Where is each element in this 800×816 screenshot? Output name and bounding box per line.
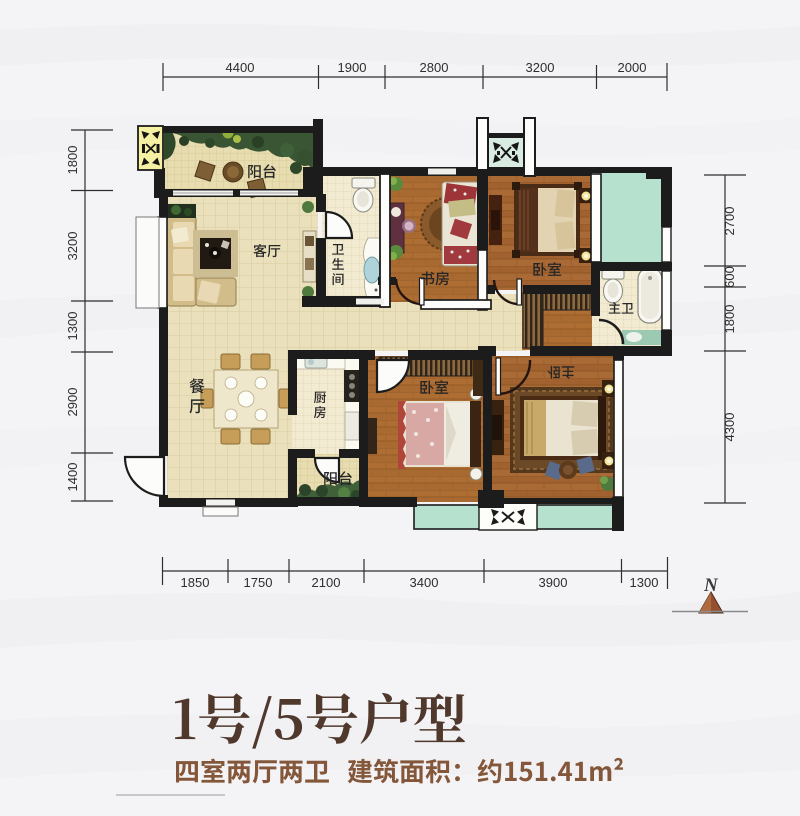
- svg-text:1400: 1400: [65, 463, 80, 492]
- svg-text:1300: 1300: [65, 312, 80, 341]
- svg-text:2700: 2700: [722, 207, 737, 236]
- svg-text:3400: 3400: [410, 575, 439, 590]
- svg-text:3200: 3200: [65, 232, 80, 261]
- svg-text:4400: 4400: [226, 60, 255, 75]
- svg-text:1900: 1900: [338, 60, 367, 75]
- svg-text:3900: 3900: [539, 575, 568, 590]
- svg-text:1800: 1800: [65, 146, 80, 175]
- svg-text:2800: 2800: [420, 60, 449, 75]
- svg-text:1800: 1800: [722, 305, 737, 334]
- svg-text:1300: 1300: [630, 575, 659, 590]
- svg-text:1850: 1850: [181, 575, 210, 590]
- svg-text:2000: 2000: [618, 60, 647, 75]
- svg-text:2900: 2900: [65, 388, 80, 417]
- svg-text:4300: 4300: [722, 413, 737, 442]
- svg-text:3200: 3200: [526, 60, 555, 75]
- svg-text:2100: 2100: [312, 575, 341, 590]
- svg-text:1750: 1750: [244, 575, 273, 590]
- svg-text:600: 600: [722, 266, 737, 288]
